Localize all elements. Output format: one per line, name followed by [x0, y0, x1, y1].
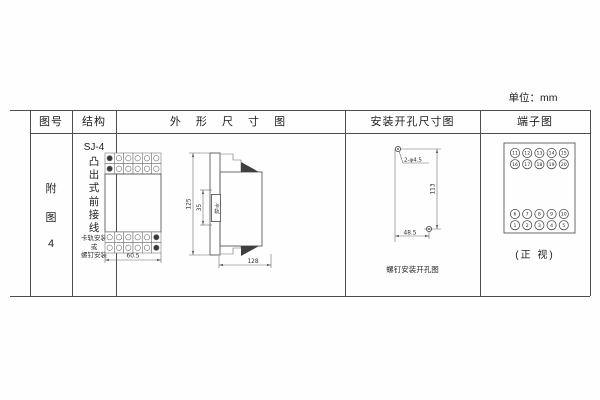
terminal-number: 1 [514, 223, 517, 229]
front-terminal-block-bottom [105, 232, 161, 253]
header-figure-no: 图号 [30, 111, 72, 133]
terminal-group-bottom: 67891012345 [510, 209, 568, 229]
dim-vertical-value: 113 [431, 183, 437, 194]
header-mounting-holes: 安装开孔尺寸图 [345, 111, 480, 133]
din-rail-label: 卡轨 [211, 194, 221, 222]
front-view-drawing: 60.5 [100, 146, 170, 268]
front-terminal-block-top [105, 153, 161, 174]
terminal-screw [135, 166, 140, 171]
terminal-number: 9 [550, 212, 553, 218]
terminal-screw [144, 156, 149, 161]
terminal-screw [116, 166, 121, 171]
terminal-screw [154, 245, 159, 250]
terminal-number: 5 [562, 223, 565, 229]
structure-char: 凸 [89, 156, 100, 169]
dim-height-value: 125 [187, 198, 193, 209]
terminal-screw [107, 166, 112, 171]
header-outline-dims: 外 形 尺 寸 图 [116, 111, 345, 133]
figure-number-cell: 附 图 4 [30, 133, 72, 296]
terminal-number: 20 [561, 162, 567, 168]
terminal-number: 17 [524, 162, 530, 168]
mounting-caption: 螺钉安装开孔图 [345, 264, 480, 275]
figure-char: 附 [46, 180, 57, 196]
leader-line [399, 151, 403, 163]
side-view-drawing: 125 35 128 [183, 146, 275, 272]
dim-width-value: 60.5 [127, 254, 140, 260]
header-structure: 结构 [72, 111, 116, 133]
arrowhead [192, 153, 194, 157]
terminal-number: 19 [549, 162, 555, 168]
hole-center [428, 228, 430, 230]
terminal-screw [116, 156, 121, 161]
terminal-screw [135, 235, 140, 240]
manual-page: 单位：mm 图号 结构 外 形 尺 寸 图 安装开孔尺寸图 端子图 附 图 4 … [0, 0, 600, 400]
terminal-screw [154, 156, 159, 161]
structure-char: 线 [89, 222, 100, 235]
terminal-screw [126, 156, 131, 161]
arrowhead [105, 259, 109, 261]
terminal-number: 10 [561, 212, 567, 218]
hole-size-label: 2-φ4.5 [404, 158, 422, 164]
terminal-screw [135, 156, 140, 161]
terminal-number: 11 [512, 151, 518, 157]
arrowhead [192, 251, 194, 255]
arrowhead [395, 235, 399, 237]
arrowhead [157, 259, 161, 261]
structure-char: 式 [89, 182, 100, 195]
terminal-screw [126, 245, 131, 250]
terminal-screw [144, 166, 149, 171]
arrowhead [436, 149, 438, 153]
terminal-number: 16 [512, 162, 518, 168]
figure-char: 图 [46, 209, 57, 225]
dim-depth-value: 128 [247, 259, 258, 265]
rail-clamp-bottom [241, 246, 259, 256]
table-border-right [590, 110, 591, 296]
terminal-screw [116, 245, 121, 250]
terminal-screw [107, 235, 112, 240]
terminal-group-top: 11121314151617181920 [510, 148, 568, 168]
arrowhead [219, 264, 223, 266]
table-divider-4 [480, 110, 481, 296]
terminal-number: 13 [536, 151, 542, 157]
unit-label: 单位：mm [488, 90, 578, 105]
terminal-screw [126, 235, 131, 240]
terminal-screw [154, 166, 159, 171]
terminal-screw [116, 235, 121, 240]
structure-char: 前 [89, 196, 100, 209]
terminal-screw [144, 235, 149, 240]
terminal-number: 14 [549, 151, 555, 157]
terminal-caption: (正 视) [480, 246, 590, 261]
dim-horizontal-value: 48.5 [404, 231, 417, 237]
table-bottom-rule [10, 296, 590, 297]
arrowhead [202, 190, 204, 194]
terminal-screw [107, 156, 112, 161]
terminal-screw [135, 245, 140, 250]
hole-center [397, 148, 399, 150]
structure-char: 出 [89, 169, 100, 182]
mounting-hole-drawing: 2-φ4.5 113 48.5 [375, 138, 465, 278]
arrowhead [436, 225, 438, 229]
arrowhead [202, 221, 204, 225]
terminal-number: 15 [561, 151, 567, 157]
header-terminal-diagram: 端子图 [480, 111, 590, 133]
figure-char: 4 [48, 238, 54, 250]
case-step-top [220, 154, 241, 172]
case-step-bottom [220, 246, 241, 254]
rail-clamp-top [241, 162, 259, 172]
terminal-diagram: 11121314151617181920 67891012345 [498, 140, 582, 240]
arrowhead [425, 235, 429, 237]
terminal-number: 6 [514, 212, 517, 218]
case-outline [220, 172, 262, 246]
terminal-number: 2 [526, 223, 529, 229]
terminal-screw [126, 166, 131, 171]
terminal-number: 8 [538, 212, 541, 218]
relay-body-outline [105, 174, 161, 232]
terminal-screw [107, 245, 112, 250]
terminal-number: 4 [550, 223, 553, 229]
terminal-number: 7 [526, 212, 529, 218]
terminal-number: 12 [524, 151, 530, 157]
dim-rail-span-value: 35 [197, 204, 203, 212]
terminal-number: 3 [538, 223, 541, 229]
terminal-screw [154, 235, 159, 240]
arrowhead [267, 264, 271, 266]
terminal-number: 18 [536, 162, 542, 168]
terminal-screw [144, 245, 149, 250]
structure-char: 接 [89, 209, 100, 222]
